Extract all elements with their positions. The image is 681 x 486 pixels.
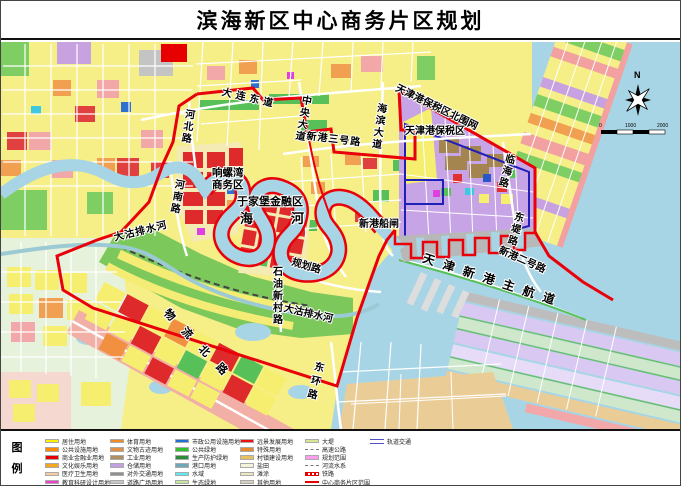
scale-tick-2000: 2000 xyxy=(657,123,668,129)
label-xiangluowan-2: 商务区 xyxy=(212,180,244,191)
legend-swatch xyxy=(110,480,124,485)
legend-swatch xyxy=(175,480,189,485)
legend-swatch xyxy=(305,481,319,483)
label-xingang-lock: 新港船闸 xyxy=(359,220,399,231)
legend-swatch xyxy=(240,447,254,452)
legend-item: 盐田 xyxy=(240,462,305,470)
legend-swatch xyxy=(175,472,189,477)
legend-swatch xyxy=(370,439,384,444)
legend-swatch xyxy=(110,472,124,477)
title-bar: 滨海新区中心商务片区规划 xyxy=(1,1,680,40)
legend-swatch xyxy=(45,472,59,477)
legend-column: 轨道交通 xyxy=(370,437,435,486)
legend-swatch xyxy=(110,463,124,468)
legend-panel: 图 例 居住用地公共设施用地商业金融业用地文化娱乐用地医疗卫生用地教育科研设计用… xyxy=(1,429,681,486)
legend-label: 其他用地 xyxy=(257,478,281,486)
legend-label: 轨道交通 xyxy=(387,437,411,446)
legend-item: 道路广场用地 xyxy=(110,478,175,486)
legend-swatch xyxy=(175,447,189,452)
label-xiangluowan-1: 响螺湾 xyxy=(212,168,244,179)
legend-swatch xyxy=(45,455,59,460)
legend-item: 港口用地 xyxy=(175,462,240,470)
legend-item: 教育科研设计用地 xyxy=(45,478,110,486)
legend-label: 中心商务片区范围 xyxy=(322,478,370,486)
legend-column: 市政公用设施用地公共绿地生产防护绿地港口用地水域生态绿地 xyxy=(175,437,240,486)
legend-item: 轨道交通 xyxy=(370,437,435,445)
legend-swatch xyxy=(305,439,319,444)
legend-swatch xyxy=(45,447,59,452)
label-haihe-hai: 海 xyxy=(240,212,253,226)
legend-column: 远景发展用地特殊用地村镇建设用地盐田滩涂其他用地 xyxy=(240,437,305,486)
legend-swatch xyxy=(240,463,254,468)
legend-item: 其他用地 xyxy=(240,478,305,486)
map-image: N 0 1000 2000 xyxy=(1,42,681,429)
legend-swatch xyxy=(240,472,254,477)
legend-columns: 居住用地公共设施用地商业金融业用地文化娱乐用地医疗卫生用地教育科研设计用地体育用… xyxy=(45,437,435,486)
legend-swatch xyxy=(240,439,254,444)
compass-north-label: N xyxy=(634,70,641,80)
legend-swatch xyxy=(175,463,189,468)
legend-label: 道路广场用地 xyxy=(127,478,163,486)
legend-swatch xyxy=(175,439,189,444)
legend-item: 河流水系 xyxy=(305,462,370,470)
legend-swatch xyxy=(45,463,59,468)
legend-swatch xyxy=(110,439,124,444)
legend-item: 村镇建设用地 xyxy=(240,453,305,461)
legend-column: 体育用地文物古迹用地工业用地仓储用地对外交通用地道路广场用地 xyxy=(110,437,175,486)
map-canvas: N 0 1000 2000 大连东道 中央大道 新港三号路 海滨大道 天津港保税… xyxy=(1,42,681,429)
scale-tick-1000: 1000 xyxy=(625,123,636,129)
planning-map-page: 滨海新区中心商务片区规划 xyxy=(0,0,681,486)
scale-tick-0: 0 xyxy=(599,123,602,129)
legend-label: 生态绿地 xyxy=(192,478,216,486)
legend-item: 生态绿地 xyxy=(175,478,240,486)
legend-label: 教育科研设计用地 xyxy=(62,478,110,486)
legend-swatch xyxy=(240,455,254,460)
label-yujiapu: 于家堡金融区 xyxy=(237,197,303,209)
legend-column: 大堤高速公路规划范围河流水系铁路中心商务片区范围 xyxy=(305,437,370,486)
page-title: 滨海新区中心商务片区规划 xyxy=(197,5,485,35)
label-btz: 天津港保税区 xyxy=(405,127,465,138)
legend-title: 图 例 xyxy=(10,438,24,480)
legend-title-char-1: 图 xyxy=(10,438,24,459)
legend-swatch xyxy=(305,455,319,460)
legend-swatch xyxy=(45,439,59,444)
legend-title-char-2: 例 xyxy=(10,459,24,480)
legend-swatch xyxy=(175,455,189,460)
legend-item: 中心商务片区范围 xyxy=(305,478,370,486)
legend-column: 居住用地公共设施用地商业金融业用地文化娱乐用地医疗卫生用地教育科研设计用地 xyxy=(45,437,110,486)
label-shiyou-xincun-rd: 石油新村路 xyxy=(270,266,281,326)
legend-swatch xyxy=(305,465,319,466)
legend-swatch xyxy=(305,472,319,477)
legend-swatch xyxy=(110,455,124,460)
legend-swatch xyxy=(305,449,319,450)
legend-swatch xyxy=(45,480,59,485)
legend-swatch xyxy=(240,480,254,485)
legend-swatch xyxy=(110,447,124,452)
label-haihe-he: 河 xyxy=(291,212,304,226)
